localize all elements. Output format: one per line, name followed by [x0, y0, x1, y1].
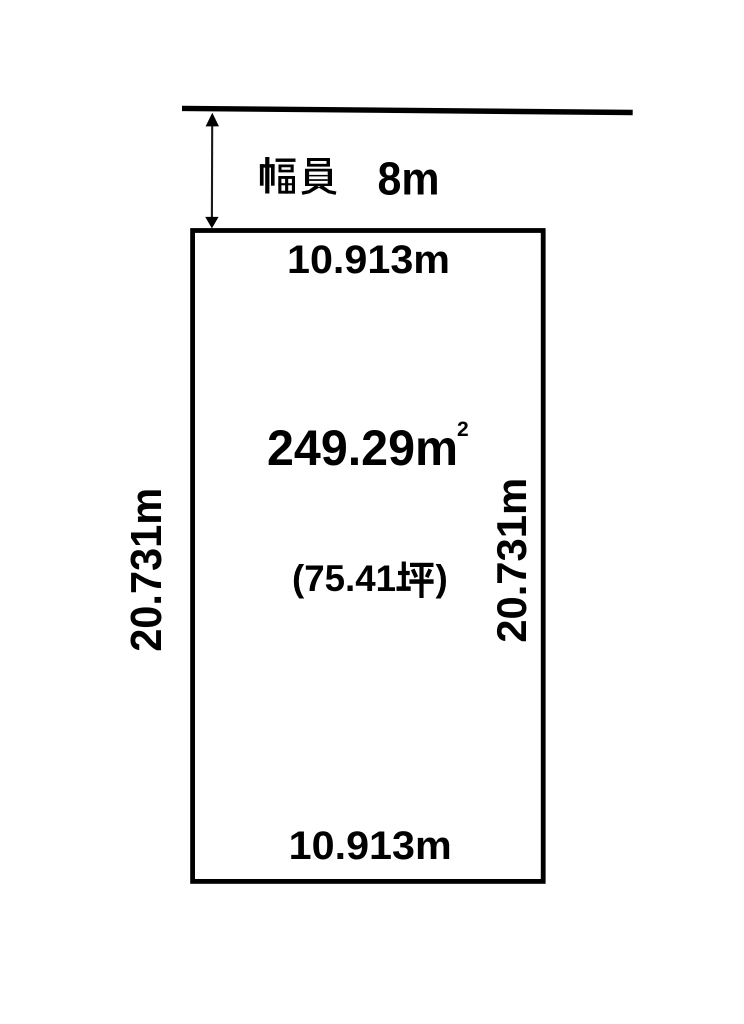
svg-text:): )	[436, 558, 448, 599]
svg-text:20.731m: 20.731m	[122, 488, 171, 652]
svg-text:10.913m: 10.913m	[289, 824, 452, 868]
svg-text:(75.41: (75.41	[292, 558, 396, 599]
svg-text:2: 2	[457, 418, 469, 441]
svg-text:249.29m: 249.29m	[267, 420, 458, 476]
svg-text:8m: 8m	[378, 153, 440, 205]
svg-text:10.913m: 10.913m	[287, 238, 450, 282]
svg-text:20.731m: 20.731m	[488, 478, 535, 643]
